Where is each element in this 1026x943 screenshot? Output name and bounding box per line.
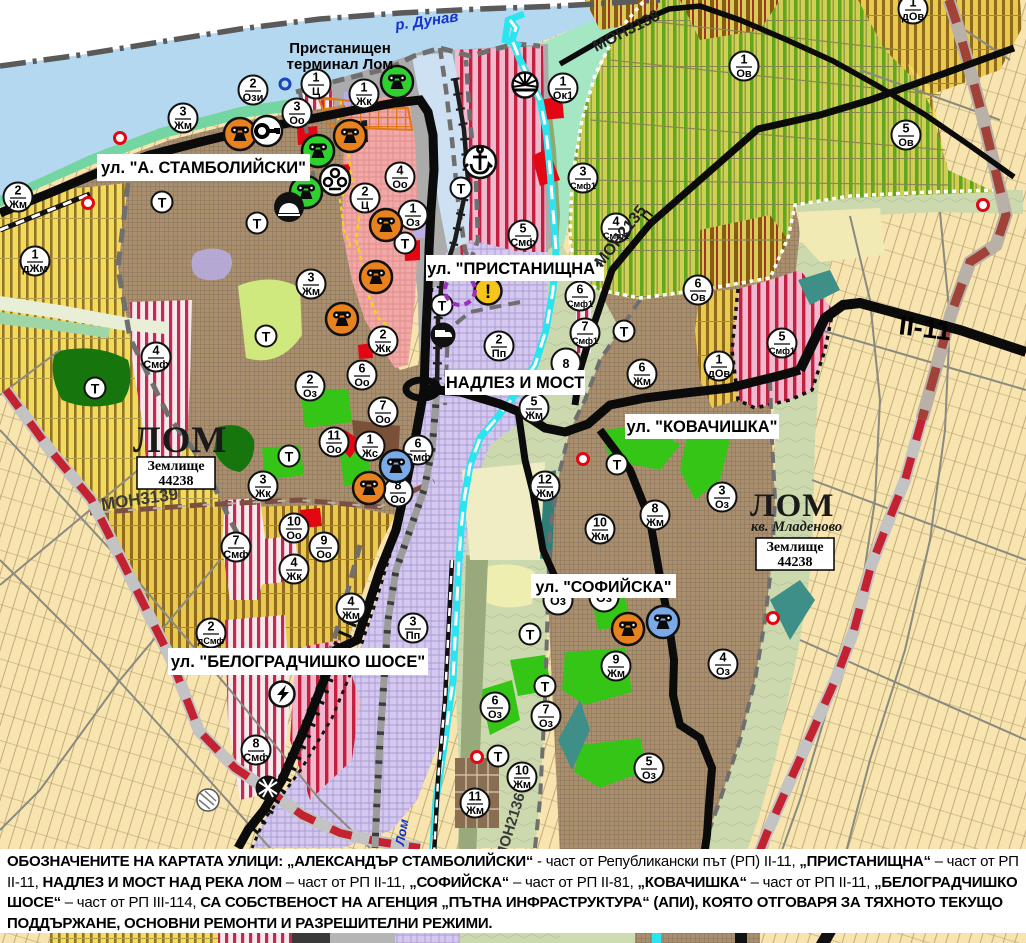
svg-text:Смф1: Смф1 (769, 346, 795, 356)
svg-text:1: 1 (716, 353, 723, 367)
svg-text:Т: Т (401, 236, 410, 252)
svg-text:Смф: Смф (510, 237, 536, 249)
svg-text:11: 11 (468, 790, 481, 804)
svg-text:Оз: Оз (642, 770, 657, 782)
svg-text:3: 3 (580, 165, 587, 179)
svg-text:Жм: Жм (606, 668, 625, 680)
svg-text:дСмф: дСмф (198, 636, 225, 646)
svg-text:2: 2 (307, 373, 314, 387)
svg-text:5: 5 (903, 122, 910, 136)
svg-text:4: 4 (720, 651, 727, 665)
svg-text:Жм: Жм (512, 779, 531, 791)
svg-text:1: 1 (410, 202, 417, 216)
svg-text:Жм: Жм (301, 286, 320, 298)
svg-text:Смф1: Смф1 (570, 181, 596, 191)
svg-text:ЛОМ: ЛОМ (133, 420, 227, 461)
svg-text:НАДЛЕЗ И МОСТ: НАДЛЕЗ И МОСТ (446, 374, 584, 392)
svg-text:ул. "КОВАЧИШКА": ул. "КОВАЧИШКА" (627, 418, 778, 436)
svg-text:1: 1 (910, 0, 917, 10)
svg-text:Смф: Смф (223, 549, 249, 561)
svg-text:2: 2 (250, 77, 257, 91)
svg-text:6: 6 (359, 362, 366, 376)
svg-text:Жм: Жм (524, 410, 543, 422)
svg-text:Оз: Оз (406, 217, 421, 229)
svg-text:2: 2 (362, 185, 369, 199)
svg-text:Оз: Оз (539, 718, 554, 730)
svg-text:Жм: Жм (535, 488, 554, 500)
svg-text:Т: Т (285, 449, 294, 465)
svg-text:Т: Т (438, 298, 447, 314)
svg-text:Ц: Ц (312, 86, 320, 98)
svg-text:5: 5 (531, 395, 538, 409)
svg-text:3: 3 (719, 484, 726, 498)
svg-text:10: 10 (593, 516, 607, 530)
svg-text:ул. "БЕЛОГРАДЧИШКО ШОСЕ": ул. "БЕЛОГРАДЧИШКО ШОСЕ" (171, 653, 425, 671)
svg-text:Жм: Жм (465, 805, 484, 817)
svg-text:Жк: Жк (285, 571, 302, 583)
svg-text:ул. "А. СТАМБОЛИЙСКИ": ул. "А. СТАМБОЛИЙСКИ" (101, 158, 306, 177)
svg-text:дОв: дОв (902, 11, 925, 23)
svg-text:Смф: Смф (143, 359, 169, 371)
svg-text:дОв: дОв (708, 368, 731, 380)
svg-text:6: 6 (639, 361, 646, 375)
svg-text:Жм: Жм (645, 517, 664, 529)
svg-text:Жм: Жм (341, 610, 360, 622)
svg-text:3: 3 (180, 105, 187, 119)
svg-text:Оо: Оо (375, 414, 391, 426)
svg-text:Смф1: Смф1 (572, 336, 598, 346)
svg-text:Т: Т (541, 679, 550, 695)
svg-text:44238: 44238 (159, 474, 194, 489)
svg-text:1: 1 (361, 81, 368, 95)
svg-text:7: 7 (582, 320, 589, 334)
svg-text:2: 2 (380, 328, 387, 342)
svg-text:Т: Т (620, 324, 629, 340)
svg-text:9: 9 (321, 534, 328, 548)
svg-text:11: 11 (327, 429, 340, 443)
svg-text:8: 8 (652, 502, 659, 516)
svg-text:Ов: Ов (690, 292, 706, 304)
svg-text:3: 3 (294, 100, 301, 114)
svg-text:ул. "ПРИСТАНИЩНА": ул. "ПРИСТАНИЩНА" (427, 260, 603, 278)
svg-text:5: 5 (520, 222, 527, 236)
svg-text:Жм: Жм (632, 376, 651, 388)
svg-text:2: 2 (496, 333, 503, 347)
svg-text:Жк: Жк (374, 343, 391, 355)
svg-text:Ов: Ов (736, 68, 752, 80)
svg-text:1: 1 (32, 248, 39, 262)
svg-text:12: 12 (538, 473, 552, 487)
svg-text:Т: Т (526, 627, 535, 643)
svg-text:Жм: Жм (590, 531, 609, 543)
svg-text:Землище: Землище (147, 459, 204, 474)
svg-text:2: 2 (208, 620, 215, 634)
svg-text:5: 5 (646, 755, 653, 769)
svg-text:II-11: II-11 (897, 310, 953, 346)
svg-text:Смф: Смф (243, 752, 269, 764)
svg-text:Оо: Оо (316, 549, 332, 561)
svg-text:8: 8 (253, 737, 260, 751)
svg-text:кв. Младеново: кв. Младеново (751, 519, 842, 535)
svg-text:Ози: Ози (243, 92, 264, 104)
svg-text:дЖм: дЖм (22, 263, 47, 275)
svg-text:Землище: Землище (766, 540, 823, 555)
svg-text:Жм: Жм (8, 199, 27, 211)
svg-text:Т: Т (158, 195, 167, 211)
svg-text:1: 1 (367, 433, 374, 447)
svg-text:1: 1 (560, 75, 567, 89)
svg-text:2: 2 (15, 184, 22, 198)
svg-text:Т: Т (253, 216, 262, 232)
svg-text:6: 6 (577, 283, 584, 297)
svg-text:Пп: Пп (492, 348, 507, 360)
svg-text:7: 7 (233, 534, 240, 548)
svg-text:Жк: Жк (355, 96, 372, 108)
svg-text:Жс: Жс (361, 448, 378, 460)
svg-text:1: 1 (741, 53, 748, 67)
svg-text:7: 7 (543, 703, 550, 717)
svg-text:7: 7 (380, 399, 387, 413)
svg-text:Ов: Ов (898, 137, 914, 149)
svg-text:Оо: Оо (354, 377, 370, 389)
svg-text:Пп: Пп (406, 630, 421, 642)
svg-text:Жк: Жк (254, 488, 271, 500)
svg-text:4: 4 (153, 344, 160, 358)
svg-text:Смф1: Смф1 (567, 299, 593, 309)
svg-text:Оо: Оо (326, 444, 342, 456)
svg-text:Оо: Оо (289, 115, 305, 127)
svg-text:Ц: Ц (361, 200, 369, 212)
svg-text:10: 10 (287, 515, 301, 529)
svg-text:Оз: Оз (303, 388, 318, 400)
svg-text:3: 3 (260, 473, 267, 487)
svg-text:Оз: Оз (716, 666, 731, 678)
svg-text:Т: Т (91, 381, 100, 397)
svg-text:4: 4 (291, 556, 298, 570)
svg-text:Оо: Оо (286, 530, 302, 542)
svg-text:Оо: Оо (392, 179, 408, 191)
svg-text:Жм: Жм (173, 120, 192, 132)
svg-text:44238: 44238 (778, 555, 813, 570)
svg-text:8: 8 (563, 357, 570, 371)
svg-text:Ок1: Ок1 (553, 90, 573, 102)
svg-text:10: 10 (515, 764, 529, 778)
svg-text:3: 3 (410, 615, 417, 629)
svg-text:терминал Лом: терминал Лом (287, 56, 394, 73)
svg-text:Пристанищен: Пристанищен (289, 40, 391, 57)
svg-text:4: 4 (348, 595, 355, 609)
svg-text:6: 6 (415, 437, 422, 451)
svg-text:5: 5 (779, 330, 786, 344)
svg-text:6: 6 (492, 694, 499, 708)
svg-text:Т: Т (613, 457, 622, 473)
svg-text:6: 6 (695, 277, 702, 291)
svg-text:Т: Т (457, 181, 466, 197)
svg-text:ул. "СОФИЙСКА": ул. "СОФИЙСКА" (535, 577, 671, 596)
svg-text:!: ! (485, 282, 491, 303)
svg-text:Оо: Оо (390, 494, 406, 506)
svg-text:Оз: Оз (488, 709, 503, 721)
svg-text:3: 3 (308, 271, 315, 285)
svg-text:Т: Т (262, 329, 271, 345)
svg-text:4: 4 (397, 164, 404, 178)
svg-text:Т: Т (494, 749, 503, 765)
svg-text:Оз: Оз (715, 499, 730, 511)
svg-text:9: 9 (613, 653, 620, 667)
